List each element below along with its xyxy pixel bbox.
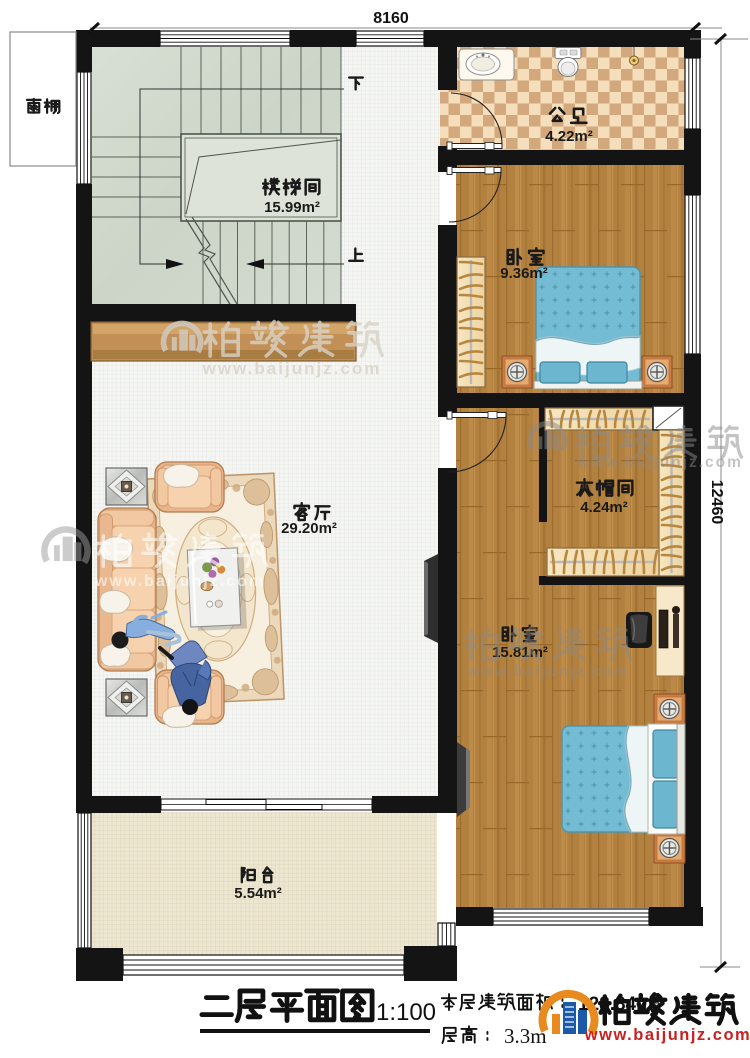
svg-text:4.24m²: 4.24m² bbox=[580, 499, 628, 516]
svg-text:12460: 12460 bbox=[708, 480, 725, 525]
svg-text:29.20m²: 29.20m² bbox=[281, 520, 337, 537]
svg-text:15.99m²: 15.99m² bbox=[264, 199, 320, 216]
svg-text:www.baijunjz.com: www.baijunjz.com bbox=[202, 359, 382, 378]
svg-text:www.baijunjz.com: www.baijunjz.com bbox=[466, 663, 628, 680]
svg-text:www.baijunjz.com: www.baijunjz.com bbox=[576, 454, 743, 471]
svg-text:9.36m²: 9.36m² bbox=[500, 265, 548, 282]
svg-text:4.22m²: 4.22m² bbox=[545, 128, 593, 145]
svg-text:1:100: 1:100 bbox=[376, 999, 436, 1026]
svg-text:www.baijunjz.com: www.baijunjz.com bbox=[584, 1026, 750, 1044]
svg-text:5.54m²: 5.54m² bbox=[234, 885, 282, 902]
svg-text:8160: 8160 bbox=[373, 10, 409, 27]
svg-text:www.baijunjz.com: www.baijunjz.com bbox=[94, 573, 265, 590]
